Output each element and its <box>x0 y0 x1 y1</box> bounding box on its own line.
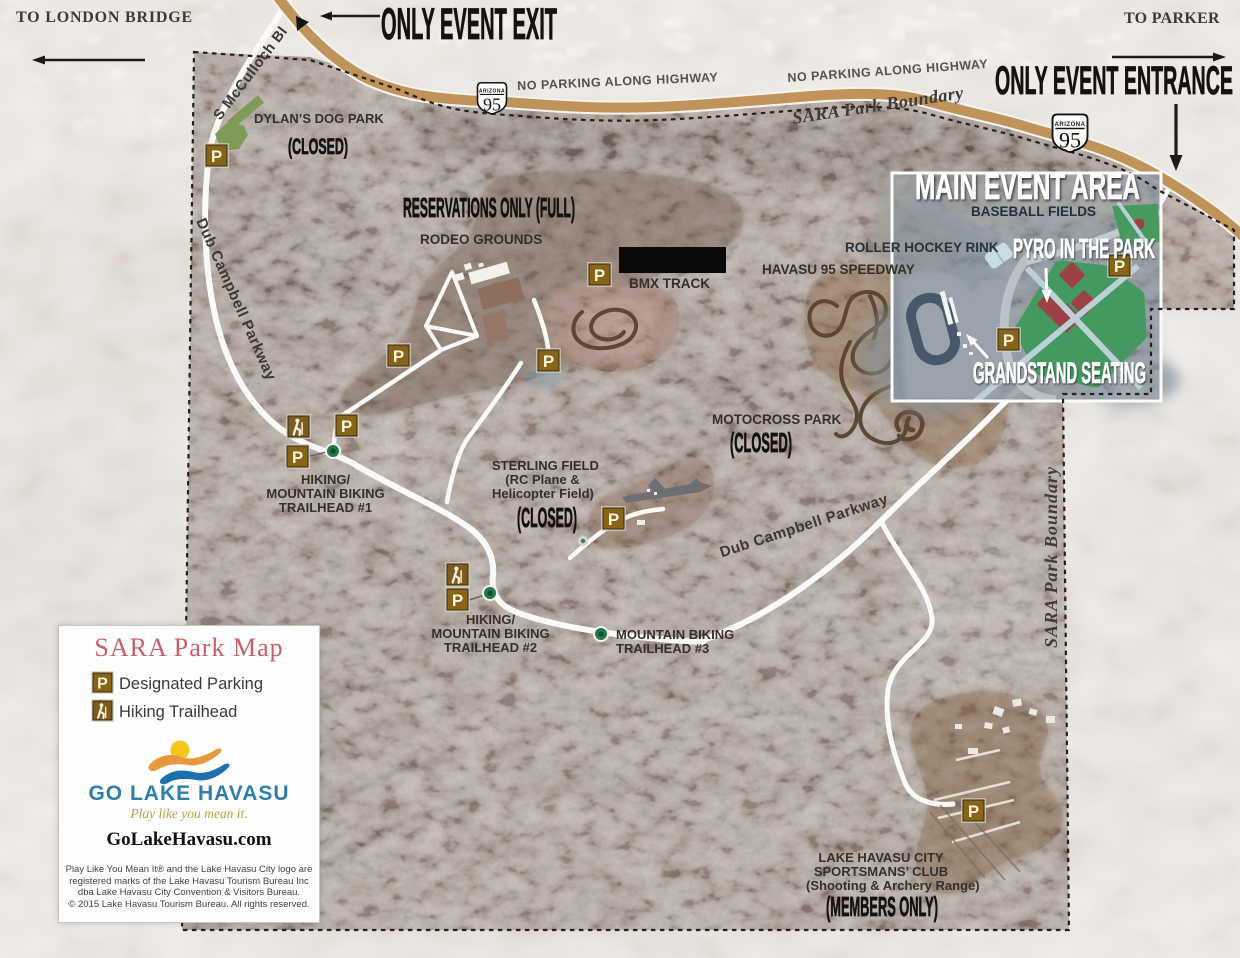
svg-text:P: P <box>292 448 303 467</box>
svg-text:95: 95 <box>483 94 501 114</box>
svg-text:P: P <box>393 347 404 366</box>
svg-text:P: P <box>452 591 463 610</box>
svg-text:P: P <box>594 266 605 285</box>
svg-text:P: P <box>543 352 554 371</box>
svg-text:95: 95 <box>1059 128 1081 153</box>
svg-text:P: P <box>968 802 979 821</box>
svg-text:P: P <box>341 417 352 436</box>
svg-text:P: P <box>608 510 619 529</box>
svg-text:P: P <box>97 676 108 693</box>
svg-text:P: P <box>1003 331 1014 350</box>
svg-text:P: P <box>211 147 222 166</box>
